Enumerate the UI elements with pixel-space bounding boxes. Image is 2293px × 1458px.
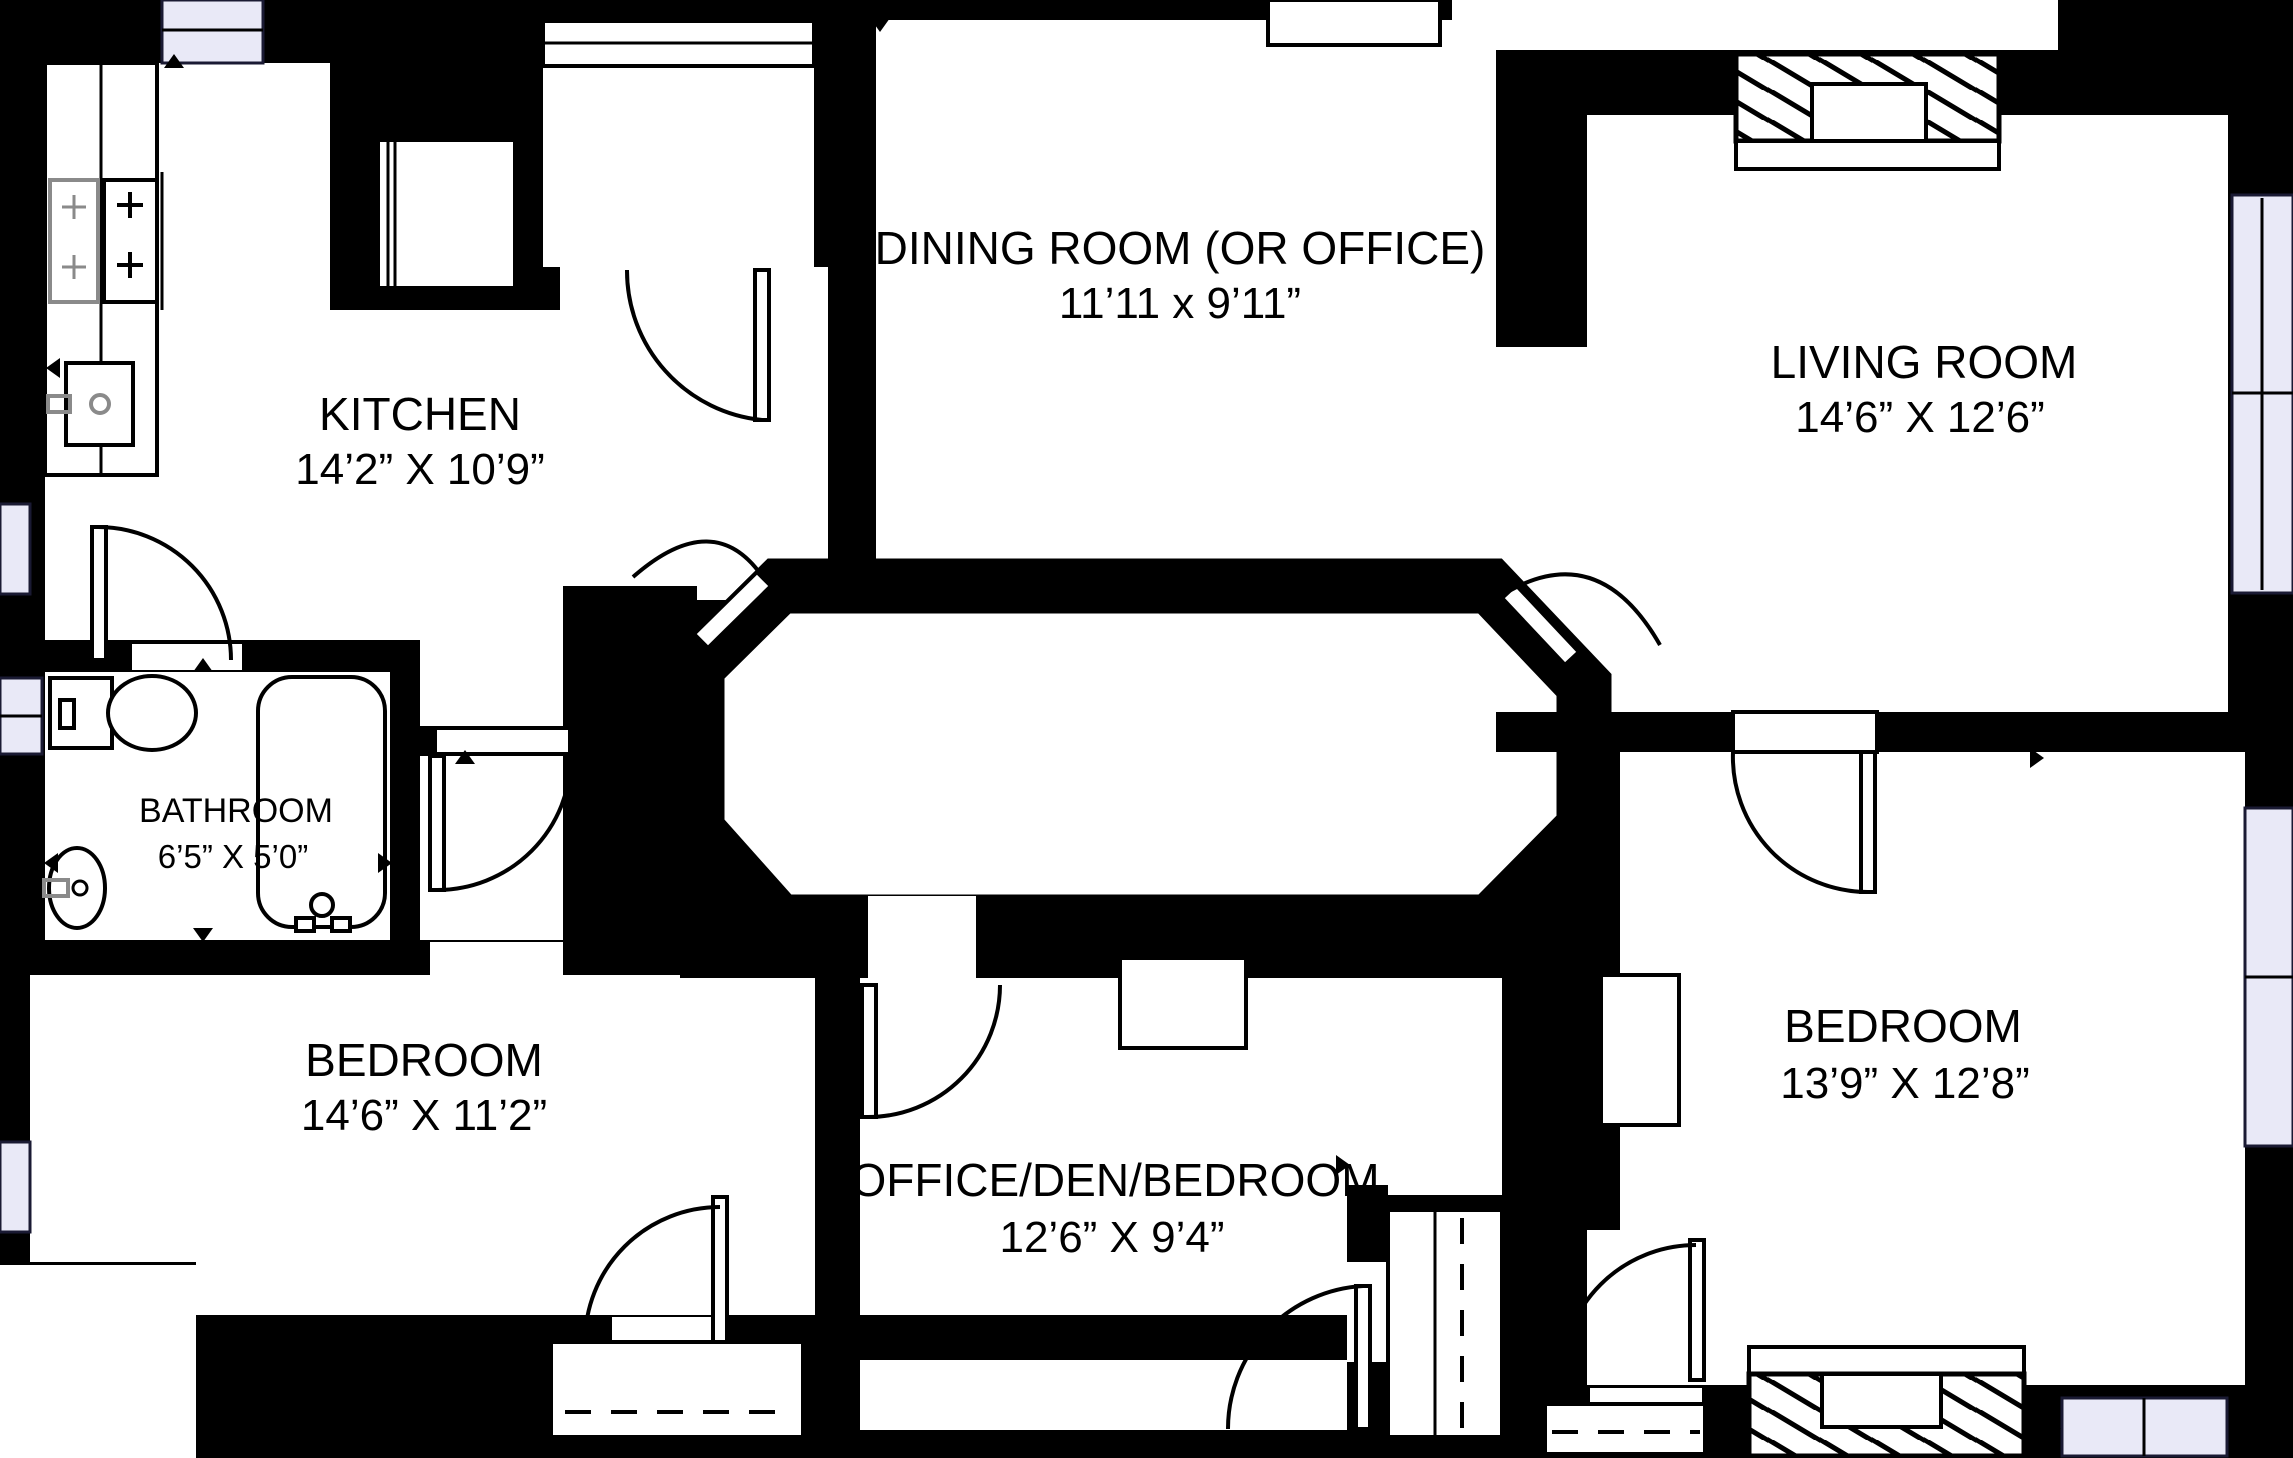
tub-handle-right xyxy=(332,918,350,931)
bathroom-label: BATHROOM xyxy=(139,792,333,830)
firebox xyxy=(1812,84,1926,141)
entry-nook-floor xyxy=(543,66,814,267)
door-bedroom-right xyxy=(1861,752,1875,892)
bedroom-right-dims: 13’9” X 12’8” xyxy=(1780,1059,2029,1108)
living-room-dims: 14’6” X 12’6” xyxy=(1795,393,2044,442)
window-kitchen-left xyxy=(0,504,30,594)
bedroom-left-dims: 14’6” X 11’2” xyxy=(301,1091,547,1140)
fireplace-icon-living-room xyxy=(1736,54,1999,169)
hearth xyxy=(1749,1347,2024,1374)
hall-closet xyxy=(1120,958,1246,1048)
firebox xyxy=(1822,1374,1941,1427)
bedroom-left-label: BEDROOM xyxy=(305,1034,543,1086)
living-room-label: LIVING ROOM xyxy=(1771,336,2078,388)
toilet-icon xyxy=(108,676,196,750)
exterior-notch-top-right xyxy=(1452,0,2058,50)
office-den-dims: 12’6” X 9’4” xyxy=(999,1213,1224,1262)
office-den-label: OFFICE/DEN/BEDROOM xyxy=(850,1154,1379,1206)
toilet-flush xyxy=(60,700,74,728)
doorway-office xyxy=(868,896,976,978)
window-bedroom-left xyxy=(0,1142,30,1232)
doorway-bedroom-left-corridor xyxy=(430,942,563,975)
door-corridor xyxy=(430,756,444,890)
door-bathroom xyxy=(92,527,106,660)
bedroom-right-window-seat xyxy=(1545,1404,1705,1454)
door-bedroom-right-bottom xyxy=(1690,1240,1704,1380)
tub-handle-left xyxy=(296,918,314,931)
kitchen-fixtures xyxy=(45,63,162,475)
door-bedroom-left xyxy=(713,1197,727,1342)
fireplace-icon-bedroom xyxy=(1749,1347,2024,1456)
bedroom-left-closet xyxy=(551,1342,803,1437)
doorway-bedroom-right xyxy=(1733,712,1877,752)
kitchen-dims: 14’2” X 10’9” xyxy=(295,445,544,494)
floor-plan-canvas: KITCHEN 14’2” X 10’9” DINING ROOM (OR OF… xyxy=(0,0,2293,1458)
dining-room-dims: 11’11 x 9’11” xyxy=(1059,279,1301,328)
bedroom-right-label: BEDROOM xyxy=(1784,1000,2022,1052)
wall-office-right xyxy=(1502,975,1587,1458)
doorway-bedroom-left-closet xyxy=(612,1317,728,1340)
office-closet xyxy=(1388,1210,1502,1437)
dining-room-label: DINING ROOM (OR OFFICE) xyxy=(875,222,1486,274)
doorway-corridor xyxy=(437,730,568,752)
hearth xyxy=(1736,141,1999,169)
window-dining-right xyxy=(1268,0,1440,45)
wall-bathroom-right xyxy=(390,640,420,975)
kitchen-sink-icon xyxy=(66,363,133,445)
exterior-notch-bottom-left xyxy=(0,1265,196,1458)
refrigerator-icon xyxy=(378,140,515,288)
bathroom-dims: 6’5” X 5’0” xyxy=(158,838,308,875)
doorway-kitchen-entry xyxy=(648,237,798,267)
doorway-bathroom xyxy=(132,644,242,670)
floor-plan: KITCHEN 14’2” X 10’9” DINING ROOM (OR OF… xyxy=(0,0,2293,1458)
wall-corridor-right xyxy=(563,586,697,975)
door-office-closet xyxy=(1356,1286,1370,1429)
door-office xyxy=(862,985,876,1117)
stair-hall xyxy=(697,586,1584,922)
bedroom-right-closet xyxy=(1601,975,1679,1125)
door-kitchen-entry xyxy=(755,270,769,420)
kitchen-label: KITCHEN xyxy=(319,388,521,440)
